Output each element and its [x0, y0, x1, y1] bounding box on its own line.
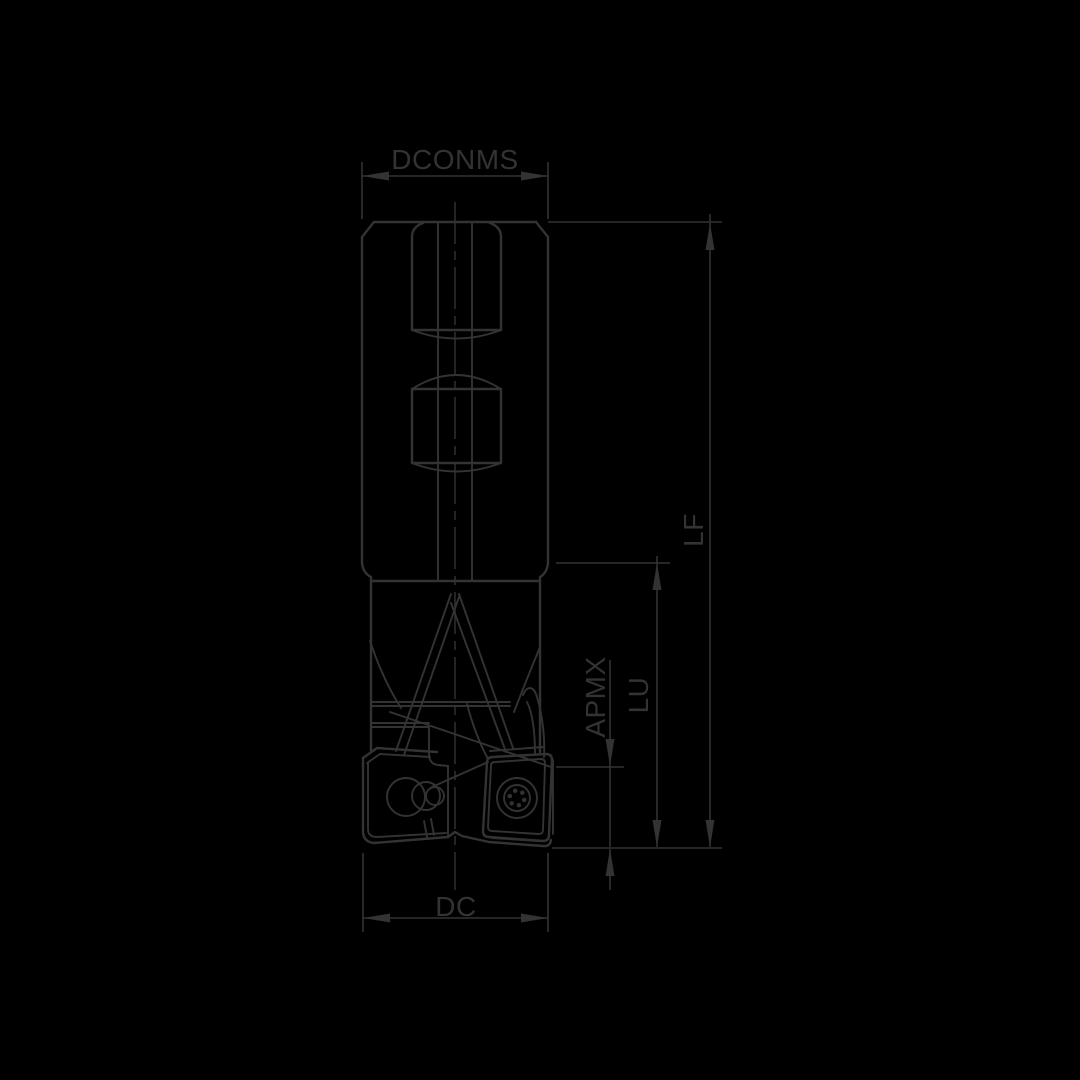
apmx-label: APMX — [580, 656, 611, 737]
lf-label: LF — [678, 513, 709, 547]
dconms-label: DCONMS — [391, 144, 518, 175]
end-mill-technical-drawing: DCONMS LF LU APMX DC — [0, 0, 1080, 1080]
lu-label: LU — [623, 677, 654, 714]
drawing-canvas: DCONMS LF LU APMX DC — [0, 0, 1080, 1080]
dc-label: DC — [435, 891, 476, 922]
